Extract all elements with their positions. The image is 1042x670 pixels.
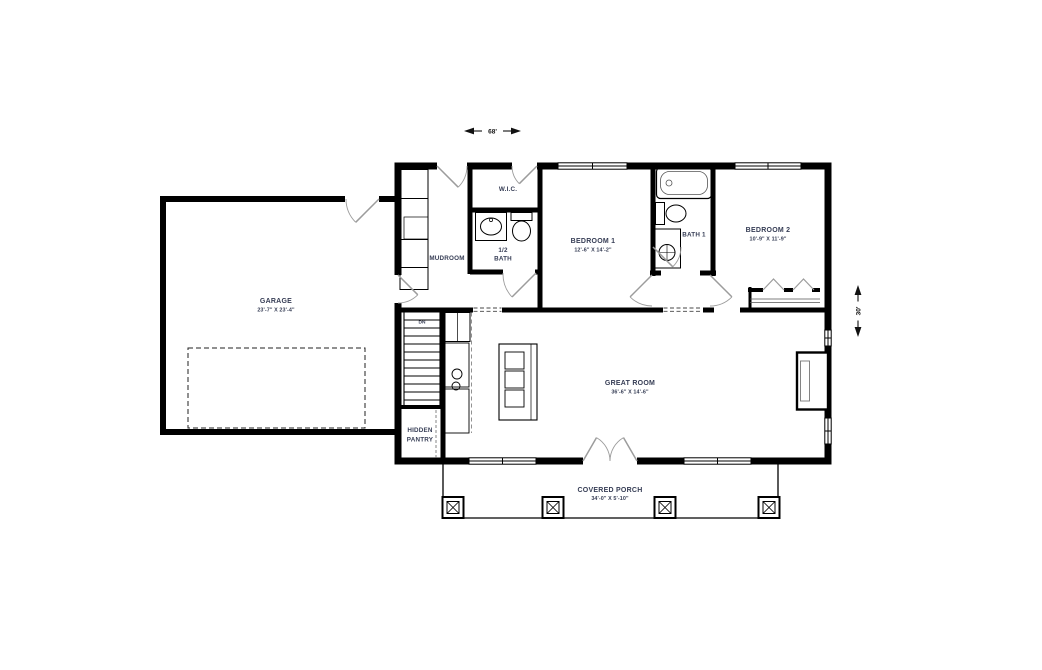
garage-label: GARAGE [260, 298, 292, 305]
great-room-label: GREAT ROOM [605, 380, 655, 387]
kitchen-counter [445, 313, 472, 434]
window [735, 163, 801, 169]
half-bath-label-line1: 1/2 [498, 247, 508, 254]
porch-column-icon [655, 497, 676, 518]
window [825, 418, 831, 444]
window [558, 163, 627, 169]
refrigerator-icon [445, 313, 470, 342]
arrow-left-icon [464, 128, 474, 135]
width-dimension: 68' [464, 128, 521, 136]
arrow-right-icon [511, 128, 521, 135]
dimension-annotations: 68' 30' [464, 128, 863, 337]
stairs-dn-label: DN [419, 320, 426, 326]
doors [346, 166, 814, 461]
sink-icon [481, 218, 502, 235]
hidden-pantry-label-line2: PANTRY [407, 437, 434, 444]
halfbath-vanity [476, 213, 507, 241]
bedroom1-label: BEDROOM 1 [571, 238, 616, 245]
door-arc [710, 275, 732, 306]
window [825, 330, 831, 346]
toilet-icon [656, 203, 687, 225]
mudroom-label: MUDROOM [429, 255, 464, 262]
covered-porch-label: COVERED PORCH [577, 487, 642, 494]
porch-column-icon [543, 497, 564, 518]
garage-door-dashed [188, 348, 365, 428]
floor-plan-page: GARAGE 23'-7" X 23'-4" MUDROOM W.I.C. 1/… [0, 0, 1042, 670]
fireplace-icon [797, 353, 828, 410]
toilet-icon [511, 213, 532, 242]
cooktop-icon [452, 369, 462, 379]
width-dimension-label: 68' [488, 129, 497, 136]
bath1-label: BATH 1 [682, 232, 706, 239]
bedroom2-size: 10'-9" X 11'-9" [749, 237, 786, 243]
bedroom1-size: 12'-6" X 14'-2" [574, 248, 612, 254]
door-arc [630, 275, 652, 306]
depth-dimension-label: 30' [856, 306, 863, 315]
great-room-size: 36'-6" X 14'-6" [611, 390, 649, 396]
half-bath-label-line2: BATH [494, 256, 512, 263]
door-arc [503, 273, 536, 297]
window [684, 458, 751, 464]
wic-label: W.I.C. [499, 186, 517, 193]
bedroom2-label: BEDROOM 2 [746, 227, 791, 234]
window [469, 458, 536, 464]
depth-dimension: 30' [855, 285, 863, 337]
closet-shelf [750, 299, 820, 303]
hidden-pantry-label-line1: HIDDEN [407, 427, 433, 434]
arrow-down-icon [855, 327, 862, 337]
floor-plan-drawing: GARAGE 23'-7" X 23'-4" MUDROOM W.I.C. 1/… [0, 0, 1042, 670]
mudroom-lockers [400, 170, 428, 290]
stairs [404, 313, 440, 406]
bathtub-icon [657, 168, 712, 199]
porch-column-icon [759, 497, 780, 518]
garage-size: 23'-7" X 23'-4" [257, 308, 295, 314]
porch-column-icon [443, 497, 464, 518]
covered-porch-size: 34'-0" X 5'-10" [591, 496, 629, 502]
kitchen-island [499, 344, 537, 420]
arrow-up-icon [855, 285, 862, 295]
